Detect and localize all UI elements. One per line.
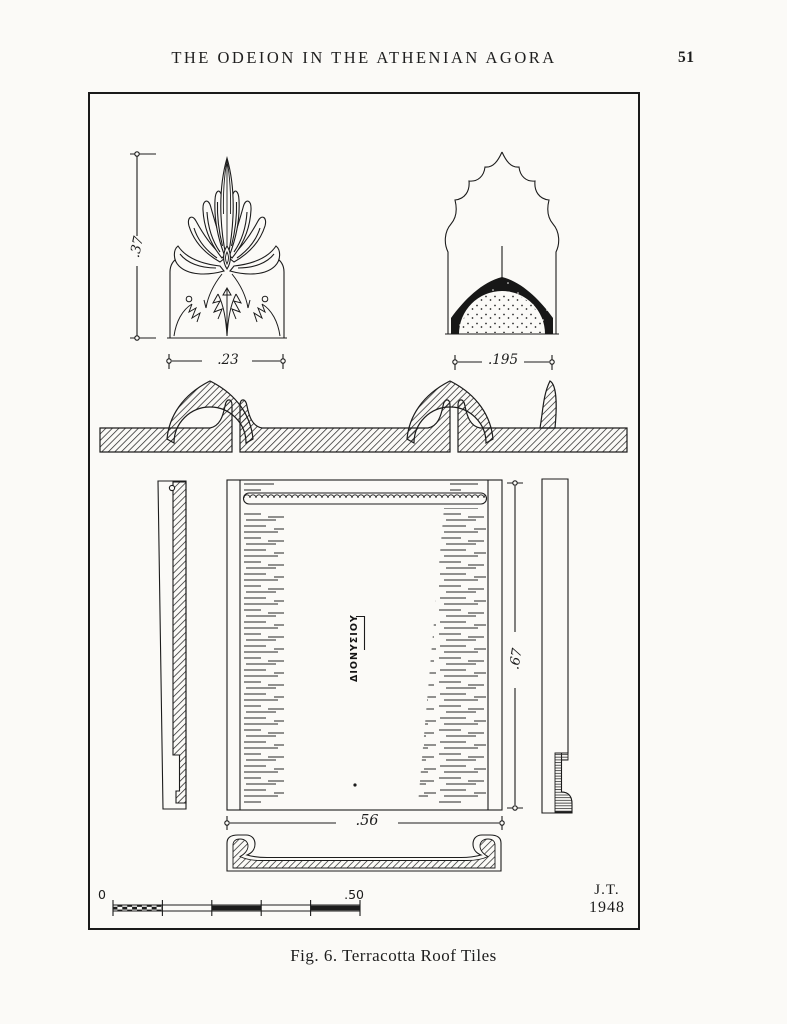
figure-caption: Fig. 6. Terracotta Roof Tiles [0,946,787,966]
page-number: 51 [678,49,708,67]
signature-initials: J.T. [576,881,638,899]
tile-side-section-left-drawing [158,481,186,809]
antefix-front-drawing [167,158,287,338]
figure-plate: .37 .23 .195 .67 .56 ΔΙΟΝΥΣΙΟΥ 0 .50 J.T… [88,92,640,930]
dim-label-pan-width: .56 [342,813,392,829]
pan-tile-cross-section-drawing [227,835,501,871]
antefix-back-drawing [445,152,559,334]
scale-bar-drawing [113,900,360,916]
plan-dot [353,783,356,786]
dim-label-antefix-width: .23 [206,352,250,368]
cover-tile-fragment [540,381,556,428]
stamp-text: ΔΙΟΝΥΣΙΟΥ [348,616,362,682]
tile-section-drawing [100,381,627,452]
scanned-page: { "page": { "header": "THE ODEION IN THE… [0,0,787,1024]
figure-drawing [88,92,640,930]
signature-year: 1948 [576,899,638,917]
tile-side-section-right-drawing [542,479,572,813]
page-title: THE ODEION IN THE ATHENIAN AGORA [88,48,640,68]
scale-zero-label: 0 [98,887,106,902]
dim-label-cover-tile-width: .195 [480,352,526,368]
signature: J.T. 1948 [576,881,638,917]
pan-tile-plan-drawing [227,480,502,810]
scale-end-label: .50 [328,887,364,902]
